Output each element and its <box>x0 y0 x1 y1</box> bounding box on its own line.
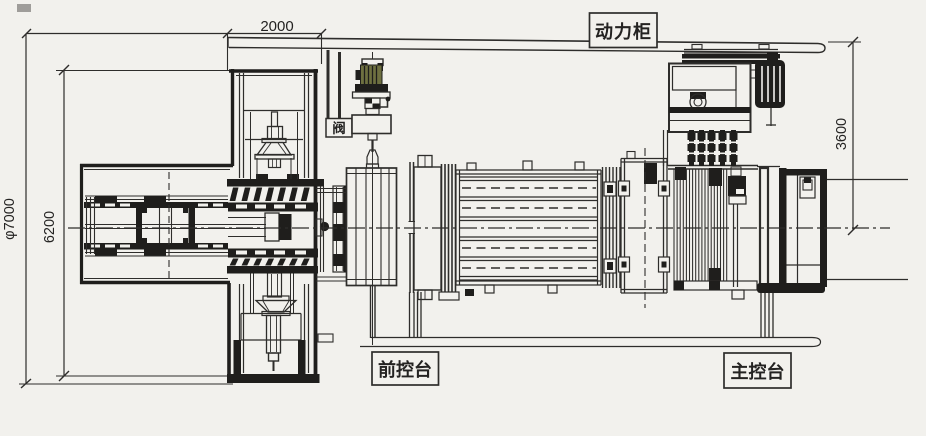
svg-text:阀: 阀 <box>332 120 346 136</box>
svg-text:2000: 2000 <box>260 18 293 35</box>
svg-text:主控台: 主控台 <box>731 361 785 382</box>
svg-text:3600: 3600 <box>834 118 850 150</box>
svg-text:前控台: 前控台 <box>378 359 432 380</box>
svg-text:动力柜: 动力柜 <box>595 21 652 42</box>
svg-text:φ7000: φ7000 <box>2 198 18 240</box>
svg-text:6200: 6200 <box>42 211 58 243</box>
